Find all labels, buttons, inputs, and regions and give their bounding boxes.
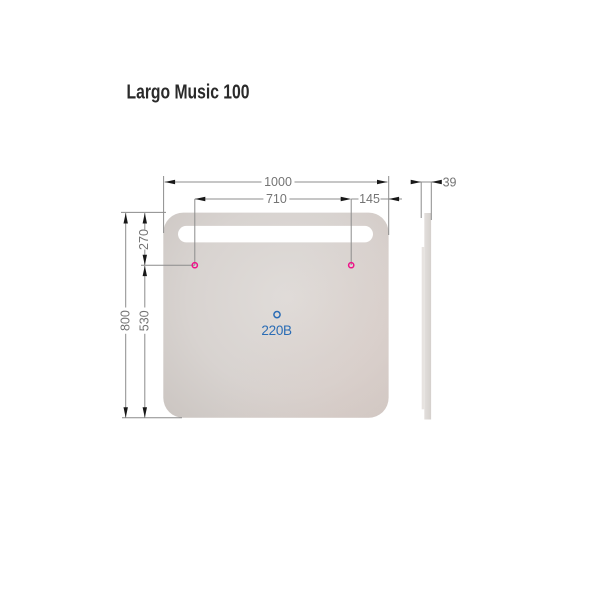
- svg-text:1000: 1000: [264, 175, 292, 189]
- svg-text:710: 710: [266, 192, 287, 206]
- svg-text:145: 145: [359, 192, 380, 206]
- svg-text:39: 39: [443, 175, 457, 189]
- svg-text:220В: 220В: [261, 323, 292, 338]
- svg-text:270: 270: [137, 229, 151, 250]
- svg-text:Largo Music 100: Largo Music 100: [127, 82, 250, 104]
- svg-text:800: 800: [119, 310, 133, 331]
- svg-text:530: 530: [138, 310, 152, 331]
